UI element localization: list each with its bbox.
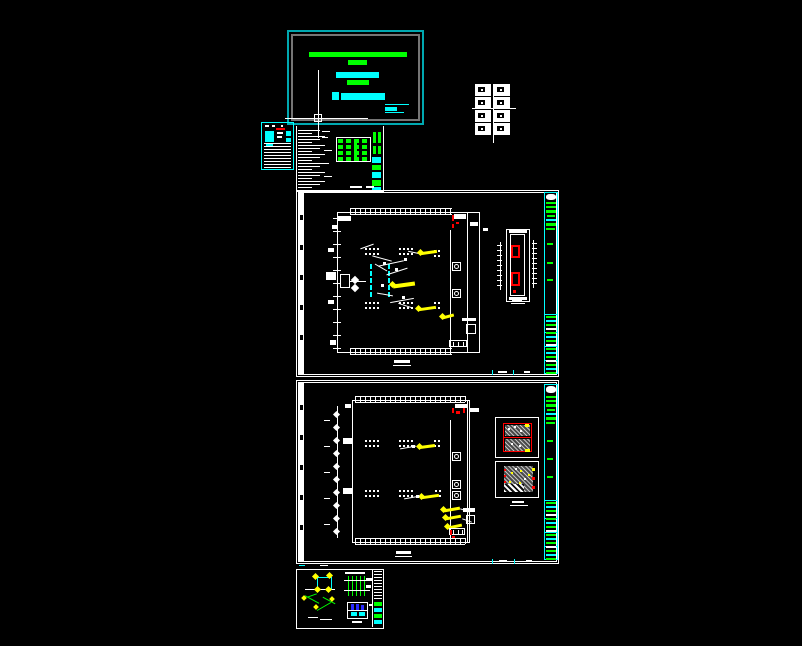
dim-tick [395, 208, 396, 214]
drawing-sheet-1-shape [395, 268, 398, 271]
dim-tick [333, 348, 341, 349]
detail-border [296, 569, 384, 629]
drawing-sheet-1-shape [350, 208, 452, 209]
detail-drawing-shape [296, 563, 336, 564]
dim-tick [435, 208, 436, 214]
drawing-sheet-1-shape [547, 215, 555, 217]
spec-text-line [298, 175, 320, 176]
system-legend-panel-shape [324, 150, 332, 151]
dim-tick [333, 322, 341, 323]
drawing-sheet-2-shape [345, 404, 351, 408]
table-row-line [264, 149, 291, 150]
drawing-sheet-1-shape [546, 320, 556, 322]
dim-tick [415, 396, 416, 402]
dim-tick [415, 348, 416, 354]
block-cell [494, 97, 510, 109]
crosshair-cursor [0, 0, 802, 646]
dim-tick [415, 538, 416, 544]
drawing-sheet-1-shape [330, 340, 336, 345]
drawing-sheet-2-shape [546, 506, 556, 508]
title-window-block-shape [347, 80, 369, 85]
drawing-sheet-1-shape [365, 253, 367, 255]
elevator-detail-outline [506, 229, 530, 302]
dim-tick [410, 396, 411, 402]
system-legend-panel-shape [372, 172, 381, 178]
system-legend-panel-shape [372, 180, 381, 186]
dim-tick [410, 538, 411, 544]
dim-tick [405, 538, 406, 544]
drawing-sheet-2-shape [440, 506, 447, 513]
drawing-sheet-2-shape [466, 515, 475, 524]
drawing-sheet-1[interactable] [0, 0, 802, 646]
system-legend-panel-shape [372, 165, 381, 170]
drawing-sheet-1-shape [546, 364, 556, 366]
drawing-sheet-2-shape [369, 495, 371, 497]
drawing-sheet-2-shape [547, 476, 553, 478]
wire-arrow [442, 313, 454, 319]
detail-drawing-shape [374, 608, 382, 612]
drawing-sheet-2-shape [395, 556, 412, 557]
drawing-sheet-2-shape [508, 428, 510, 430]
dim-diamond [333, 528, 340, 535]
cad-canvas[interactable] [0, 0, 802, 646]
drawing-sheet-2[interactable] [0, 0, 802, 646]
drawing-sheet-2-shape [546, 542, 556, 544]
note-text-line [374, 583, 382, 584]
dim-line-horizontal [472, 108, 516, 109]
dim-tick [455, 396, 456, 402]
spec-text-line [298, 142, 312, 143]
schedule-table-shape [265, 125, 269, 127]
dim-tick [395, 348, 396, 354]
block-grid-legend-shape [500, 102, 502, 104]
drawing-sheet-2-shape [546, 502, 556, 504]
detail-drawing-shape [308, 617, 318, 618]
drawing-sheet-2-shape [470, 408, 479, 412]
title-window-block[interactable] [0, 0, 802, 646]
dim-tick [430, 396, 431, 402]
system-legend-panel-shape [354, 151, 359, 155]
drawing-sheet-2-shape [355, 538, 465, 539]
note-text-line [374, 577, 382, 578]
detail-drawing-shape [344, 590, 370, 591]
stair-symbol [449, 528, 465, 535]
drawing-sheet-1-shape [389, 281, 396, 288]
dim-tick [430, 348, 431, 354]
drawing-sheet-2-shape [399, 445, 401, 447]
block-grid-legend-shape [500, 128, 502, 130]
drawing-sheet-2-shape [435, 495, 437, 497]
yellow-diamond [312, 573, 319, 580]
dim-tick [333, 218, 341, 219]
dim-tick [425, 396, 426, 402]
drawing-sheet-1-shape [439, 313, 446, 320]
elevator-shaft [511, 245, 520, 258]
schedule-table[interactable] [0, 0, 802, 646]
note-text-line [374, 592, 382, 593]
system-legend-panel-shape [373, 132, 376, 143]
drawing-sheet-2-shape [504, 484, 524, 492]
drawing-sheet-1-shape [411, 253, 413, 255]
dim-tick [375, 348, 376, 354]
dim-tick [380, 538, 381, 544]
dim-tick [420, 208, 421, 214]
drawing-sheet-2-shape [546, 522, 556, 524]
drawing-sheet-2-shape [300, 525, 303, 530]
drawing-sheet-2-shape [452, 536, 455, 538]
system-legend-panel-shape [322, 131, 330, 132]
detail-drawing-shape [301, 595, 307, 601]
drawing-sheet-2-shape [324, 446, 330, 447]
detail-drawing-shape [369, 604, 373, 606]
dim-tick [355, 348, 356, 354]
detail-drawing-shape [344, 580, 370, 581]
drawing-sheet-1-shape [546, 316, 556, 318]
drawing-sheet-2-shape [369, 490, 371, 492]
drawing-sheet-2-shape [514, 559, 515, 564]
wire-arrow [393, 281, 415, 288]
drawing-sheet-1-shape [415, 305, 422, 312]
system-legend-panel-shape [346, 139, 351, 143]
system-legend-panel[interactable] [0, 0, 802, 646]
dim-tick [460, 538, 461, 544]
drawing-sheet-1-shape [399, 307, 401, 309]
cyan-dashed-riser [388, 278, 390, 283]
yellow-diamond [314, 586, 321, 593]
drawing-sheet-2-shape [528, 474, 530, 476]
drawing-sheet-2-shape [546, 417, 556, 420]
block-grid-legend-shape [481, 115, 483, 117]
drawing-sheet-1-shape [399, 302, 401, 304]
drawing-sheet-1-shape [373, 253, 375, 255]
dim-tick [460, 396, 461, 402]
drawing-sheet-2-shape [434, 440, 436, 442]
dim-tick [333, 257, 341, 258]
drawing-sheet-2-shape [435, 490, 437, 492]
drawing-sheet-1-shape [438, 302, 440, 304]
drawing-sheet-2-shape [546, 550, 556, 552]
drawing-sheet-1-shape [532, 243, 537, 244]
note-text-line [374, 589, 382, 590]
schedule-table-shape [272, 125, 275, 127]
drawing-sheet-1-shape [407, 248, 409, 250]
dim-tick [435, 396, 436, 402]
drawing-sheet-1-shape [497, 245, 502, 246]
drawing-sheet-1-shape [369, 302, 371, 304]
drawing-sheet-1-shape [532, 253, 537, 254]
dim-line [337, 406, 338, 538]
system-legend-panel-shape [378, 146, 381, 154]
spec-text-line [298, 181, 325, 182]
drawing-sheet-2-shape [532, 468, 535, 471]
system-legend-panel-shape [338, 151, 343, 155]
drawing-sheet-1-shape [399, 253, 401, 255]
pickbox [314, 114, 322, 122]
note-text-line [374, 574, 382, 575]
dim-tick [415, 208, 416, 214]
system-legend-panel-shape [338, 145, 343, 149]
drawing-sheet-1-shape [532, 283, 537, 284]
drawing-sheet-1-shape [411, 248, 413, 250]
drawing-sheet-1-shape [300, 335, 303, 340]
block-grid-legend-shape [481, 128, 483, 130]
drawing-sheet-1-shape [402, 296, 405, 299]
block-cell [494, 123, 510, 135]
drawing-sheet-1-shape [498, 371, 507, 373]
fixture-symbol [452, 262, 461, 271]
drawing-sheet-1-shape [365, 307, 367, 309]
drawing-sheet-1-shape [408, 251, 420, 254]
system-legend-panel-shape [373, 146, 376, 154]
drawing-sheet-1-shape [438, 250, 440, 252]
system-legend-panel-shape [354, 139, 357, 161]
drawing-sheet-1-shape [533, 240, 534, 288]
dim-tick [380, 348, 381, 354]
drawing-sheet-1-shape [454, 214, 466, 219]
dim-tick [375, 208, 376, 214]
drawing-sheet-2-shape [403, 440, 405, 442]
title-window-block-shape [336, 72, 379, 78]
drawing-sheet-1-shape [403, 307, 405, 309]
dim-tick [400, 396, 401, 402]
dim-tick [455, 538, 456, 544]
dim-diamond [333, 515, 340, 522]
drawing-sheet-2-shape [546, 530, 556, 532]
drawing-sheet-1-shape [546, 352, 556, 354]
system-legend-panel-shape [346, 157, 351, 161]
dim-tick [410, 348, 411, 354]
detail-drawing-shape [372, 570, 373, 627]
drawing-sheet-2-shape [300, 465, 303, 470]
dim-tick [370, 208, 371, 214]
drawing-sheet-1-shape [547, 279, 553, 281]
dim-tick [410, 208, 411, 214]
drawing-sheet-2-shape [355, 544, 465, 545]
drawing-sheet-1-shape [350, 354, 452, 355]
dim-tick [465, 396, 466, 402]
schedule-table-shape [286, 138, 291, 142]
system-legend-panel-shape [322, 163, 329, 164]
drawing-sheet-1-shape [456, 222, 459, 224]
drawing-sheet-1-shape [365, 302, 367, 304]
drawing-sheet-2-shape [512, 501, 524, 503]
drawing-sheet-2-shape [300, 435, 303, 440]
green-riser-line [307, 593, 317, 597]
drawing-sheet-1-shape [450, 230, 451, 352]
drawing-sheet-2-shape [463, 408, 465, 413]
dim-tick [400, 348, 401, 354]
drawing-sheet-1-shape [483, 228, 488, 231]
dim-tick [450, 208, 451, 214]
block-grid-legend-shape [500, 89, 502, 91]
title-text-bar [309, 52, 407, 57]
sheet-inner-border [298, 192, 557, 375]
detail-drawing[interactable] [0, 0, 802, 646]
dim-tick [450, 396, 451, 402]
drawing-sheet-1-shape [513, 370, 514, 375]
drawing-sheet-1-shape [546, 210, 556, 213]
drawing-sheet-1-shape [332, 225, 337, 229]
dim-tick [370, 396, 371, 402]
logo-cloud [546, 194, 556, 200]
system-legend-panel-shape [296, 191, 384, 192]
drawing-sheet-1-shape [546, 344, 556, 346]
block-cell [494, 110, 510, 122]
drawing-sheet-1-shape [434, 255, 436, 257]
block-grid-legend-shape [481, 89, 483, 91]
drawing-sheet-1-shape [351, 276, 359, 284]
detail-drawing-shape [351, 604, 354, 610]
drawing-sheet-1-shape [544, 360, 558, 361]
drawing-sheet-2-shape [514, 426, 516, 428]
drawing-sheet-2-shape [411, 490, 413, 492]
drawing-sheet-2-shape [369, 445, 371, 447]
system-legend-panel-shape [350, 186, 362, 188]
drawing-sheet-2-shape [438, 440, 440, 442]
drawing-sheet-1-shape [546, 228, 555, 230]
drawing-sheet-2-shape [510, 505, 528, 506]
drawing-sheet-1-shape [497, 270, 502, 271]
dim-tick [445, 396, 446, 402]
outlet-dots [373, 440, 375, 442]
drawing-sheet-1-shape [398, 303, 412, 308]
detail-drawing-shape [366, 578, 372, 581]
spec-text-line [298, 157, 320, 158]
table-row-line [264, 161, 291, 162]
system-legend-panel-shape [372, 187, 381, 190]
drawing-sheet-2-shape [546, 518, 556, 520]
dim-tick [405, 348, 406, 354]
block-grid-legend-shape [497, 126, 504, 131]
spec-text-line [298, 133, 312, 134]
dim-tick [435, 348, 436, 354]
drawing-sheet-1-shape [497, 275, 502, 276]
detail-drawing-shape [351, 612, 357, 616]
drawing-sheet-1-shape [417, 249, 424, 256]
dim-tick [435, 538, 436, 544]
fixture-symbol [452, 452, 461, 461]
cyan-dashed-riser [370, 264, 372, 269]
drawing-sheet-2-shape [418, 493, 425, 500]
schedule-table-shape [266, 144, 273, 147]
drawing-sheet-1-shape [509, 297, 527, 300]
detail-drawing-shape [313, 604, 319, 610]
drawing-sheet-2-shape [324, 498, 330, 499]
drawing-sheet-2-shape [456, 411, 460, 414]
dim-tick [375, 538, 376, 544]
drawing-sheet-2-shape [442, 514, 449, 521]
green-bus-lines [348, 576, 349, 596]
dim-tick [333, 309, 341, 310]
system-legend-panel-shape [378, 132, 381, 143]
outlet-dots [373, 248, 375, 250]
dim-tick [425, 348, 426, 354]
drawing-sheet-2-shape [547, 440, 553, 442]
block-cell [475, 84, 491, 96]
note-text-line [374, 598, 382, 599]
drawing-sheet-1-shape [434, 250, 436, 252]
dim-tick [355, 208, 356, 214]
drawing-sheet-1-shape [497, 255, 502, 256]
detail-drawing-shape [348, 610, 368, 611]
detail-drawing-shape [320, 619, 332, 620]
title-window-block-shape [385, 104, 409, 105]
drawing-sheet-2-shape [403, 495, 405, 497]
drawing-sheet-2-shape [499, 560, 507, 562]
dim-tick [385, 348, 386, 354]
red-revision-mark [276, 128, 285, 130]
drawing-sheet-2-shape [454, 482, 459, 487]
block-cell [475, 110, 491, 122]
drawing-sheet-2-shape [416, 443, 423, 450]
dim-tick [440, 348, 441, 354]
drawing-sheet-1-shape [360, 244, 373, 250]
drawing-sheet-2-shape [462, 518, 472, 522]
drawing-sheet-1-shape [546, 328, 556, 330]
drawing-sheet-2-shape [546, 413, 556, 415]
dim-tick [390, 348, 391, 354]
block-grid-legend-shape [497, 87, 504, 92]
drawing-sheet-1-shape [377, 302, 379, 304]
spec-text-line [298, 148, 320, 149]
sheet-inner-border [298, 382, 557, 562]
drawing-sheet-2-shape [455, 404, 467, 408]
dim-diamond [333, 502, 340, 509]
yellow-diamond [325, 586, 332, 593]
detail-drawing-shape [320, 565, 328, 566]
block-grid-legend-shape [500, 115, 502, 117]
drawing-sheet-1-shape [497, 265, 502, 266]
drawing-sheet-2-shape [524, 478, 526, 480]
system-legend-panel-shape [362, 139, 367, 143]
drawing-sheet-1-shape [546, 368, 556, 370]
schedule-table-shape [265, 131, 274, 142]
drawing-sheet-2-shape [404, 496, 420, 500]
system-legend-panel-shape [338, 139, 343, 143]
schedule-table-shape [277, 136, 282, 138]
dim-diamond [333, 411, 340, 418]
drawing-sheet-1-shape [511, 303, 525, 304]
panel-detail-box [347, 602, 368, 619]
detail-drawing-shape [374, 620, 382, 624]
dim-diamond [333, 424, 340, 431]
dim-diamond [333, 476, 340, 483]
dim-tick [350, 208, 351, 214]
drawing-sheet-2-shape [546, 404, 556, 407]
drawing-sheet-1-shape [381, 284, 384, 287]
block-grid-legend[interactable] [0, 0, 802, 646]
drawing-sheet-2-shape [503, 423, 532, 452]
drawing-sheet-1-shape [407, 307, 409, 309]
outlet-dots [377, 248, 379, 250]
drawing-sheet-1-shape [300, 215, 303, 220]
green-riser-line [305, 595, 320, 603]
drawing-sheet-1-shape [547, 262, 553, 264]
drawing-sheet-2-shape [520, 470, 522, 472]
dim-diamond [333, 463, 340, 470]
drawing-sheet-2-shape [355, 396, 465, 397]
green-bus-lines [356, 576, 357, 596]
system-legend-panel-shape [338, 157, 343, 161]
schedule-table-shape [281, 125, 283, 127]
drawing-sheet-2-shape [511, 443, 513, 445]
title-strip-border [544, 384, 558, 560]
drawing-sheet-1-shape [532, 248, 537, 249]
drawing-sheet-1-shape [462, 318, 476, 321]
drawing-sheet-2-shape [403, 490, 405, 492]
dim-tick [365, 396, 366, 402]
drawing-sheet-2-shape [520, 430, 522, 432]
